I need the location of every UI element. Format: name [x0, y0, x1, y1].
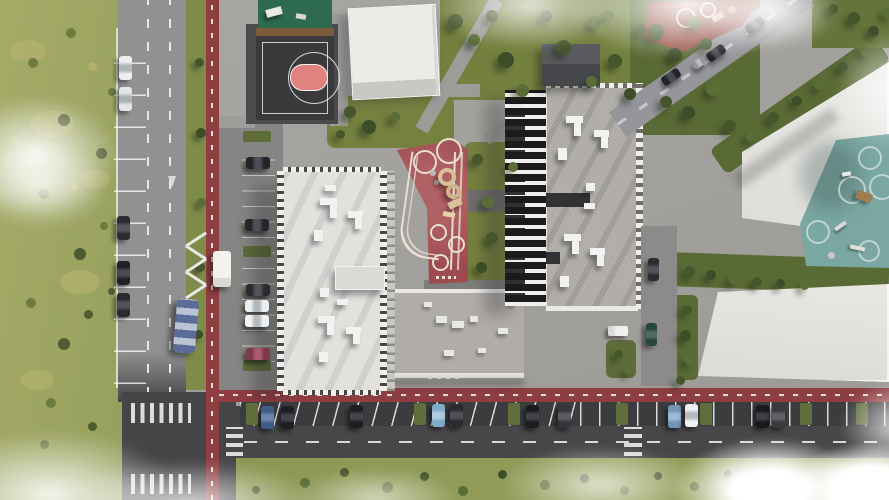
tree [882, 8, 889, 18]
tree [776, 279, 785, 288]
teal-marking-ring [806, 220, 830, 244]
grass-light-patch [20, 370, 54, 390]
bike-lane-dash [211, 0, 213, 500]
service-building-roof [348, 4, 441, 100]
playground-marking-dashes [436, 276, 456, 279]
ac-unit [558, 148, 567, 160]
parked-car [526, 405, 539, 428]
ac-unit [318, 316, 335, 323]
parked-car [119, 56, 132, 80]
footpath [436, 84, 480, 97]
tree [498, 52, 514, 68]
playground-marking-ring [430, 224, 447, 241]
crosswalk [131, 403, 191, 423]
parked-car [246, 284, 270, 296]
parked-car [281, 406, 294, 429]
tree [336, 130, 345, 139]
tree [660, 96, 672, 108]
roof-vent [498, 328, 508, 334]
aerial-site-render [0, 0, 889, 500]
tree [792, 96, 802, 106]
tree [482, 196, 494, 208]
court-key [290, 64, 328, 91]
tree [516, 84, 529, 97]
parked-car [117, 293, 130, 317]
tree [362, 120, 376, 134]
parked-car [450, 404, 463, 427]
cloud [290, 468, 460, 500]
bush [88, 62, 97, 71]
tower-a-balcony-edge [283, 390, 381, 395]
building-bottomright-roof [696, 280, 889, 382]
playground-marking-ring [448, 236, 465, 253]
tower-a-east-facade [387, 171, 395, 391]
parked-car [117, 261, 130, 285]
street-vertical-right [641, 226, 677, 386]
bush [46, 398, 56, 408]
tower-b-roof-notch [546, 252, 560, 264]
parked-car [558, 405, 571, 428]
tree [680, 330, 691, 341]
play-figure [430, 170, 436, 176]
tree [624, 366, 633, 375]
ac-unit [327, 323, 334, 335]
parked-car [119, 87, 132, 111]
crosswalk [226, 427, 243, 456]
playground-marking-ring [432, 254, 449, 271]
roof-vent [470, 316, 478, 322]
cloud [700, 0, 840, 50]
grass-light-patch [60, 270, 100, 294]
tree [472, 154, 483, 165]
planter [616, 403, 628, 425]
bush [66, 28, 76, 38]
tree [624, 88, 636, 100]
roof-vent [478, 348, 486, 353]
driving-car [646, 323, 657, 346]
ac-unit [355, 218, 362, 229]
tree [197, 198, 206, 207]
tree [614, 350, 623, 359]
bush [84, 310, 93, 319]
ac-unit [325, 185, 336, 191]
ac-unit [601, 137, 608, 148]
tree [508, 162, 518, 172]
tower-b-parapet [546, 306, 638, 311]
tree [682, 106, 695, 119]
planter [508, 403, 520, 425]
ac-unit [348, 211, 363, 218]
parked-van [608, 326, 628, 336]
planter [243, 131, 271, 142]
tree [800, 281, 809, 290]
bus [173, 298, 200, 354]
ac-unit [584, 203, 595, 209]
ac-unit [353, 334, 360, 344]
tree [486, 232, 498, 244]
grass-light-patch [10, 40, 46, 62]
parked-car [246, 348, 270, 360]
bush [74, 248, 86, 260]
roof-vent [436, 316, 447, 323]
tower-a-core-wing [335, 266, 385, 290]
tree [706, 82, 720, 96]
planter [414, 403, 426, 425]
roof-vent [424, 302, 432, 307]
tree [724, 120, 736, 132]
ac-unit [346, 327, 361, 334]
tower-b-zebra-variation [505, 90, 525, 306]
driving-car [648, 258, 659, 281]
tree [586, 76, 597, 87]
parked-car [261, 406, 274, 429]
ac-unit [560, 276, 569, 287]
lane-dash-line [147, 0, 149, 396]
tree [390, 112, 400, 122]
parked-car [245, 300, 269, 312]
tree [728, 274, 738, 284]
tree [752, 277, 762, 287]
parked-car [117, 216, 130, 240]
parked-car [245, 219, 269, 231]
parked-car [432, 404, 445, 427]
ac-unit [590, 248, 605, 255]
ac-unit [597, 255, 604, 266]
ac-unit [594, 130, 609, 137]
tower-a-balcony-edge [283, 167, 381, 172]
parked-car [245, 315, 269, 327]
ac-unit [566, 116, 583, 123]
bush [108, 288, 115, 295]
play-figure [434, 180, 439, 185]
ac-unit [564, 234, 581, 241]
roof-vent [444, 350, 454, 356]
tree [196, 128, 206, 138]
tree [768, 112, 779, 123]
bush [28, 58, 38, 68]
ac-unit [319, 352, 328, 362]
tree [476, 262, 487, 273]
podium-shadow [392, 378, 524, 387]
tree [195, 58, 204, 67]
tree [684, 355, 694, 365]
tree [684, 266, 695, 277]
tower-a-balcony-edge [277, 171, 284, 391]
cloud [836, 30, 889, 150]
ac-unit [586, 183, 595, 191]
bush [26, 298, 36, 308]
tree [344, 106, 356, 118]
parked-car [350, 405, 363, 428]
tree [814, 80, 824, 90]
cloud [0, 140, 110, 230]
parked-car [246, 157, 270, 169]
tree [746, 132, 756, 142]
ac-unit [337, 299, 348, 305]
ac-unit [320, 198, 337, 205]
ac-unit [574, 123, 581, 136]
ac-unit [330, 205, 337, 218]
play-equipment [828, 252, 835, 259]
planter [246, 403, 258, 425]
truck [213, 251, 231, 287]
cloud [60, 460, 320, 500]
ac-unit [314, 230, 323, 241]
bush [58, 338, 70, 350]
ac-unit [572, 241, 579, 254]
tree [676, 376, 685, 385]
tree [848, 12, 860, 24]
tree [706, 270, 716, 280]
lane-dash-line [169, 0, 171, 396]
tree [682, 305, 692, 315]
roof-vent [452, 321, 464, 328]
cloud [840, 380, 889, 470]
ac-unit [320, 288, 329, 297]
